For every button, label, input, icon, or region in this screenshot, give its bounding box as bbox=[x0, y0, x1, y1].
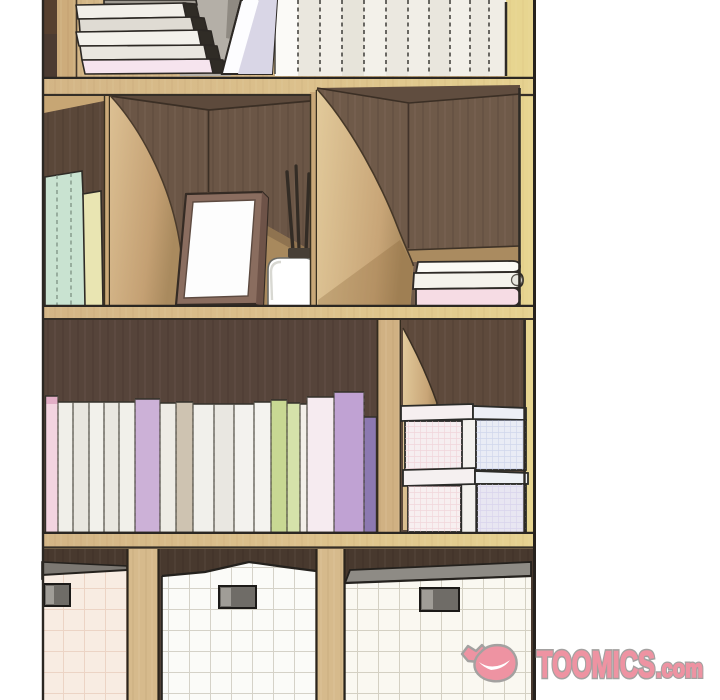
svg-text:.com: .com bbox=[656, 655, 703, 683]
svg-text:TOOMICS: TOOMICS bbox=[537, 644, 655, 685]
